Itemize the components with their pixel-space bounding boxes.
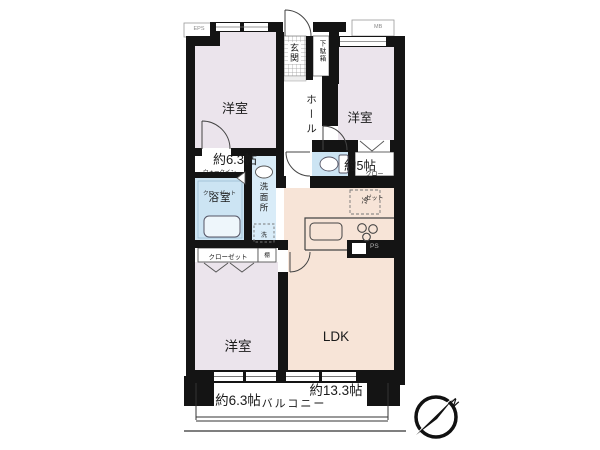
duct-box — [352, 243, 366, 254]
ldk-door-arc — [286, 152, 310, 176]
washer-label: 洗 — [261, 230, 267, 239]
washroom-label: 洗面所 — [258, 182, 270, 214]
entrance-step — [284, 76, 306, 81]
hall-label: ホール — [304, 94, 319, 138]
shelf-label: 棚 — [260, 251, 274, 259]
entrance-label: 玄関 — [288, 42, 301, 64]
pipe-space-label: PS — [370, 243, 379, 250]
shoe-cabinet-label: 下駄箱 — [316, 40, 326, 63]
balcony-label: バルコニー — [242, 395, 346, 411]
closet-bedroom3-label: クローゼット — [199, 251, 257, 261]
refrigerator-label: 冷 — [351, 196, 379, 206]
compass-north-label: N — [448, 397, 461, 410]
compass-icon: N — [413, 395, 461, 438]
bathroom-label: 浴室 — [198, 190, 242, 205]
meter-box-label: MB — [374, 24, 382, 30]
eps-label: EPS — [186, 26, 212, 32]
floor-plan: N 洋室 約6.3帖 洋室 約5帖 洋室 約6.3帖 LDK 約13.3帖 玄関… — [0, 0, 600, 450]
bathtub-icon — [204, 216, 240, 237]
meter-box — [352, 20, 394, 36]
